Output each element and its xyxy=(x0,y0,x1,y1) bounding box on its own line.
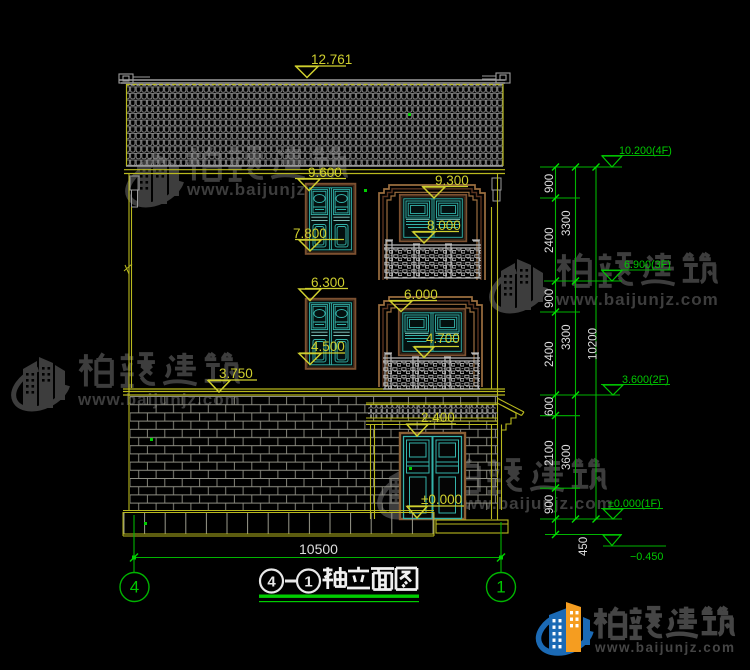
svg-text:1: 1 xyxy=(496,578,505,597)
svg-text:4: 4 xyxy=(267,574,276,591)
svg-text:3300: 3300 xyxy=(561,210,573,236)
svg-text:4.700: 4.700 xyxy=(426,331,460,346)
svg-text:4.500: 4.500 xyxy=(311,339,345,354)
svg-text:2100: 2100 xyxy=(544,440,556,466)
svg-text:1: 1 xyxy=(304,574,312,591)
svg-text:3600: 3600 xyxy=(561,444,573,470)
svg-text:900: 900 xyxy=(544,289,556,308)
svg-text:9.300: 9.300 xyxy=(435,173,469,188)
svg-text:2.400: 2.400 xyxy=(421,410,455,425)
svg-text:900: 900 xyxy=(544,495,556,514)
svg-text:900: 900 xyxy=(544,174,556,193)
svg-text:2400: 2400 xyxy=(544,341,556,367)
svg-text:12.761: 12.761 xyxy=(311,52,352,67)
svg-text:9.600: 9.600 xyxy=(308,165,342,180)
svg-text:10500: 10500 xyxy=(299,541,338,557)
svg-text:10200: 10200 xyxy=(588,328,600,360)
svg-text:7.800: 7.800 xyxy=(293,226,327,241)
svg-text:600: 600 xyxy=(544,397,556,416)
svg-text:6.900(3F): 6.900(3F) xyxy=(624,259,671,271)
svg-text:3300: 3300 xyxy=(561,324,573,350)
svg-text:2400: 2400 xyxy=(544,227,556,253)
svg-text:8.000: 8.000 xyxy=(427,218,461,233)
svg-text:3.750: 3.750 xyxy=(219,366,253,381)
svg-text:6.300: 6.300 xyxy=(311,275,345,290)
svg-text:4: 4 xyxy=(130,578,139,597)
svg-text:www.baijunjz.com: www.baijunjz.com xyxy=(555,290,719,309)
svg-text:www.baijunjz.com: www.baijunjz.com xyxy=(594,640,736,655)
svg-text:−0.450: −0.450 xyxy=(630,551,663,563)
svg-text:6.000: 6.000 xyxy=(404,287,438,302)
svg-text:±0.000: ±0.000 xyxy=(421,492,462,507)
svg-text:450: 450 xyxy=(578,537,590,556)
